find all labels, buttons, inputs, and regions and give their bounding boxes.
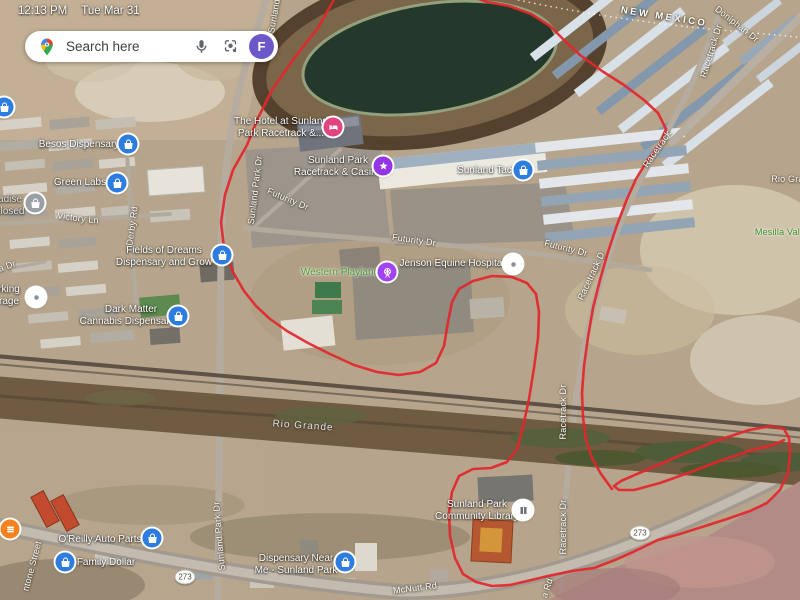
place-dot-icon[interactable] [27, 288, 46, 307]
google-maps-app: NEW MEXICO Doniphan Dr Racetrack Dr Race… [0, 0, 800, 600]
status-time: 12:13 PM [18, 5, 67, 17]
river-label-right: Rio Gran [771, 174, 800, 184]
casino-icon[interactable] [374, 157, 393, 176]
shopping-bag-icon[interactable] [169, 307, 188, 326]
status-date: Tue Mar 31 [81, 5, 139, 17]
hotel-bed-icon[interactable] [324, 118, 343, 137]
satellite-map[interactable] [0, 0, 800, 600]
road-label-racetrack: Racetrack Dr [558, 500, 568, 555]
road-label-racetrack: Racetrack Dr [558, 385, 568, 440]
google-maps-pin-icon [37, 37, 57, 57]
shopping-bag-icon[interactable] [119, 135, 138, 154]
shopping-bag-icon[interactable] [336, 553, 355, 572]
shopping-bag-icon[interactable] [56, 553, 75, 572]
closed-bag-icon[interactable] [26, 194, 45, 213]
shopping-bag-icon[interactable] [108, 174, 127, 193]
shopping-bag-icon[interactable] [213, 246, 232, 265]
route-shield-273: 273 [630, 526, 651, 541]
park-label-mesilla: Mesilla Vale [755, 227, 800, 237]
ferris-wheel-icon[interactable] [378, 263, 397, 282]
library-book-icon[interactable] [514, 501, 533, 520]
google-lens-icon[interactable] [221, 38, 239, 56]
status-bar: 12:13 PM Tue Mar 31 [18, 5, 140, 17]
mic-icon[interactable] [192, 38, 210, 56]
place-dot-icon[interactable] [504, 255, 523, 274]
search-input[interactable]: Search here [66, 39, 181, 54]
account-avatar[interactable]: F [249, 34, 274, 59]
restaurant-icon[interactable] [1, 520, 20, 539]
search-bar[interactable]: Search here F [25, 31, 278, 62]
shopping-bag-icon[interactable] [514, 161, 533, 180]
shopping-bag-icon[interactable] [143, 529, 162, 548]
route-shield-273: 273 [175, 570, 196, 585]
